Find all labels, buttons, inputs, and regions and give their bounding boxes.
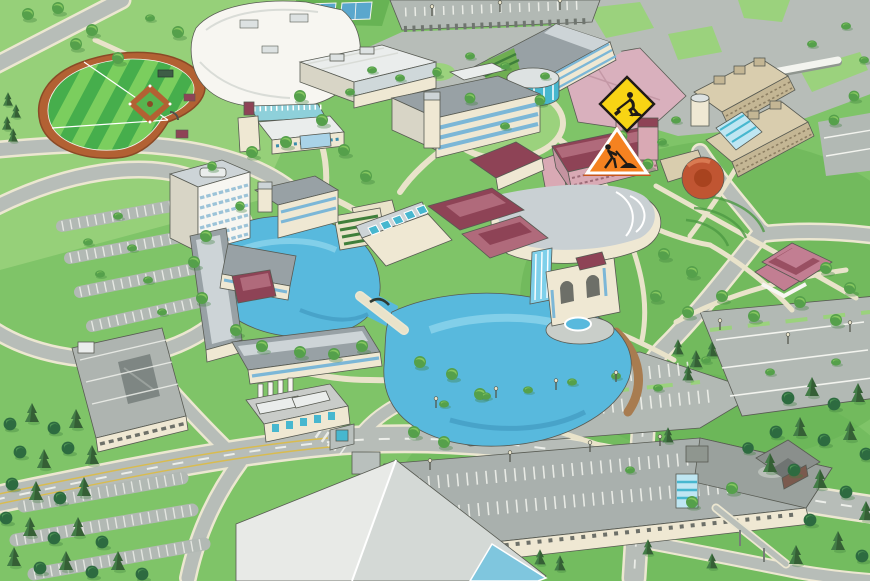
bleachers <box>184 94 195 101</box>
dugout-building <box>176 130 188 138</box>
scoreboard <box>158 70 173 77</box>
pitchers-mound <box>147 101 153 107</box>
fountain-pool <box>565 318 591 331</box>
glass-portico <box>300 133 331 149</box>
stair-tower <box>424 96 440 148</box>
cylindrical-tower <box>691 94 709 126</box>
campus-map-illustration: Illustrated aerial campus map <box>0 0 870 581</box>
campus-map: Illustrated aerial campus map <box>0 0 870 581</box>
tree-icon <box>860 448 870 463</box>
east-exit-road <box>762 232 870 236</box>
arena-maroon-accent <box>244 102 254 115</box>
far-east-lot <box>818 112 870 176</box>
elevator-tower <box>78 342 94 353</box>
worker-head <box>605 144 611 150</box>
arch-opening <box>560 281 574 304</box>
worker-head <box>627 92 633 98</box>
arch-opening <box>586 275 600 298</box>
